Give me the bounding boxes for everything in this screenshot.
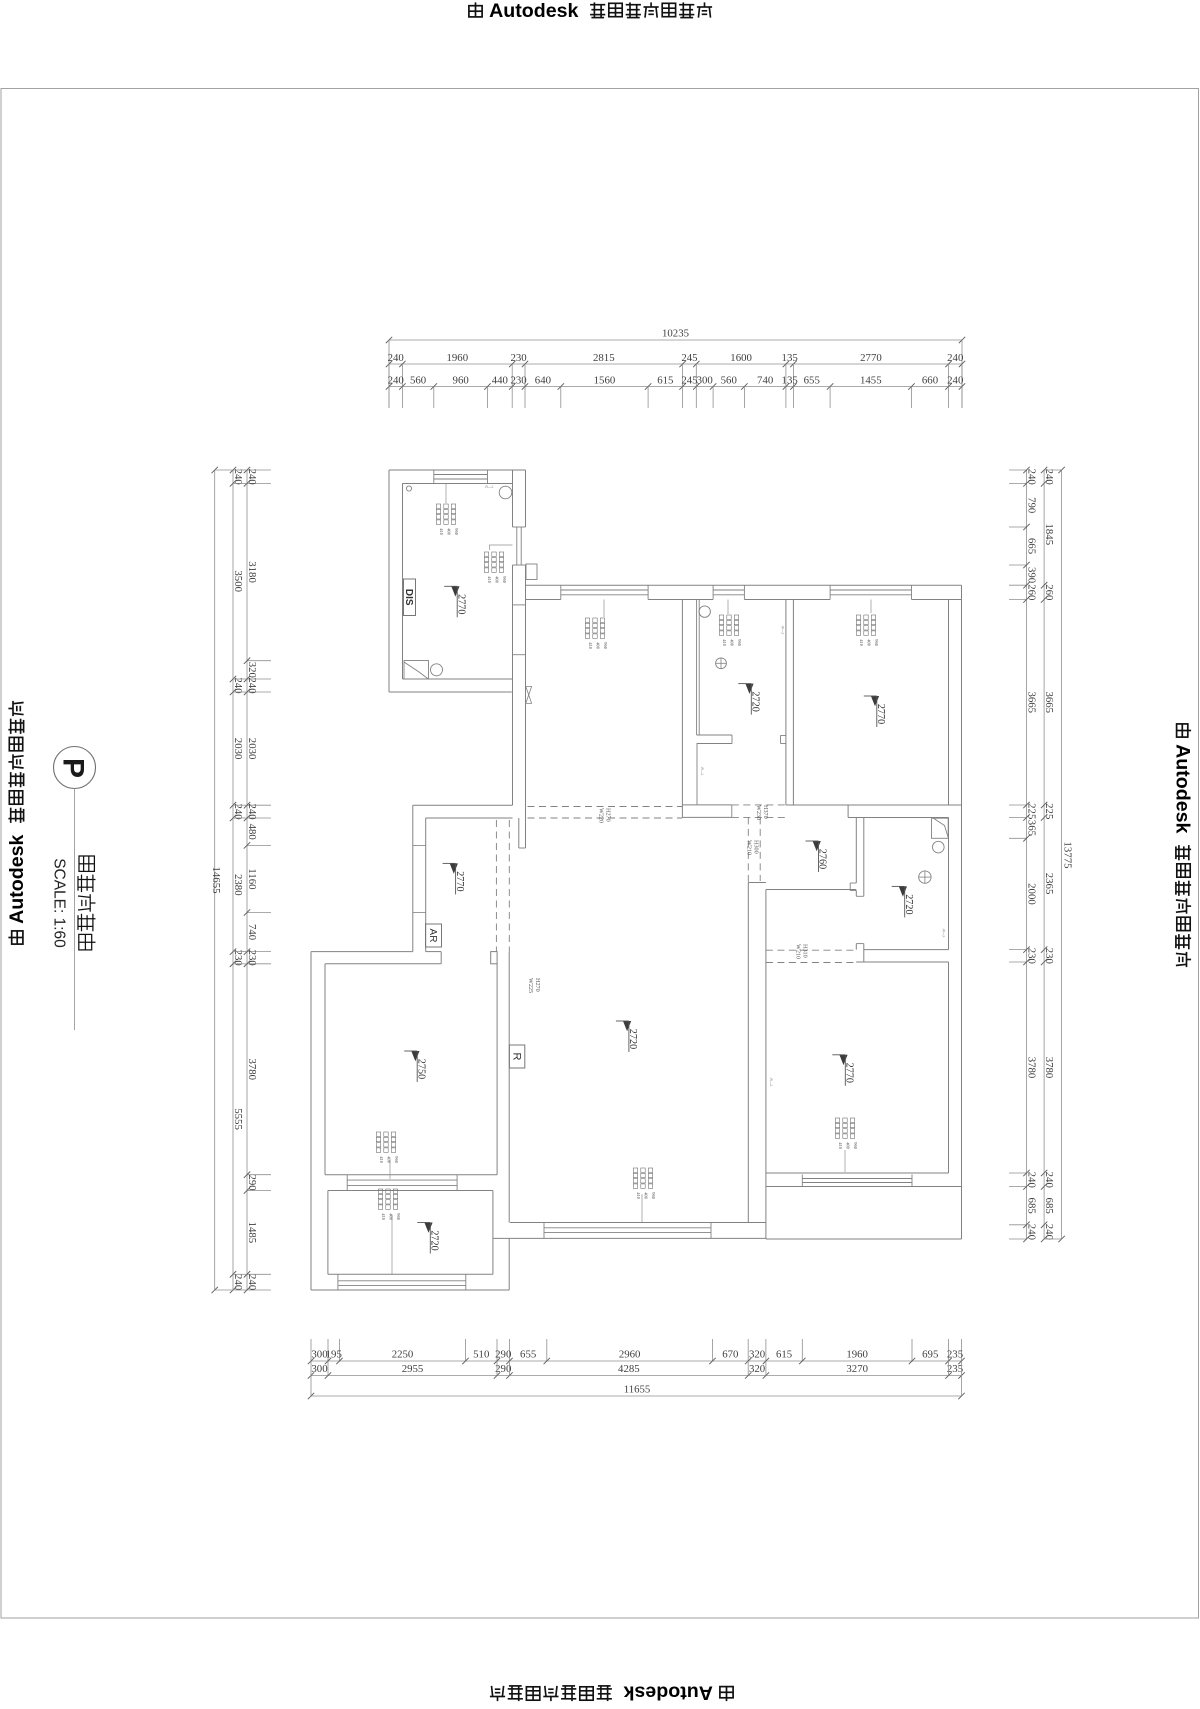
svg-text:P: P bbox=[57, 758, 90, 778]
svg-text:410: 410 bbox=[722, 639, 727, 647]
svg-text:2770: 2770 bbox=[860, 352, 882, 364]
svg-text:245: 245 bbox=[681, 352, 697, 364]
svg-text:2720: 2720 bbox=[429, 1230, 440, 1250]
svg-text:665: 665 bbox=[1026, 538, 1038, 554]
svg-text:400: 400 bbox=[846, 1142, 851, 1150]
svg-text:1600: 1600 bbox=[730, 352, 752, 364]
svg-text:440: 440 bbox=[492, 374, 508, 386]
svg-text:240: 240 bbox=[1026, 1224, 1038, 1240]
svg-text:960: 960 bbox=[651, 1192, 656, 1200]
svg-text:1845: 1845 bbox=[1043, 524, 1055, 546]
svg-text:3780: 3780 bbox=[1043, 1057, 1055, 1079]
svg-text:Autodesk: Autodesk bbox=[623, 1682, 712, 1704]
svg-text:615: 615 bbox=[657, 374, 673, 386]
svg-text:2380: 2380 bbox=[232, 874, 244, 896]
svg-text:480: 480 bbox=[246, 824, 258, 840]
svg-text:Autodesk: Autodesk bbox=[489, 0, 578, 22]
svg-text:-R—J-: -R—J- bbox=[942, 928, 946, 937]
svg-text:640: 640 bbox=[535, 374, 551, 386]
svg-text:960: 960 bbox=[454, 528, 459, 536]
svg-text:H370: H370 bbox=[762, 805, 769, 819]
svg-text:960: 960 bbox=[874, 639, 879, 647]
svg-text:4285: 4285 bbox=[618, 1363, 640, 1375]
svg-text:320: 320 bbox=[749, 1349, 765, 1361]
svg-text:960: 960 bbox=[396, 1213, 401, 1221]
svg-text:300: 300 bbox=[697, 374, 713, 386]
svg-text:560: 560 bbox=[721, 374, 737, 386]
svg-text:400: 400 bbox=[387, 1156, 392, 1164]
svg-text:410: 410 bbox=[859, 639, 864, 647]
svg-text:1960: 1960 bbox=[846, 1349, 868, 1361]
svg-text:410: 410 bbox=[636, 1192, 641, 1200]
svg-text:240: 240 bbox=[232, 1274, 244, 1290]
svg-text:235: 235 bbox=[947, 1349, 963, 1361]
svg-text:240: 240 bbox=[1043, 469, 1055, 485]
svg-text:2815: 2815 bbox=[593, 352, 615, 364]
svg-text:5555: 5555 bbox=[232, 1108, 244, 1130]
svg-text:W210: W210 bbox=[794, 944, 801, 959]
svg-text:-R—J-: -R—J- bbox=[484, 485, 493, 489]
svg-text:240: 240 bbox=[1043, 1172, 1055, 1188]
svg-text:H310: H310 bbox=[802, 944, 809, 958]
svg-text:H270: H270 bbox=[534, 978, 541, 992]
svg-text:2750: 2750 bbox=[415, 1059, 426, 1079]
svg-text:3780: 3780 bbox=[1026, 1057, 1038, 1079]
svg-text:2960: 2960 bbox=[619, 1349, 641, 1361]
svg-text:240: 240 bbox=[1026, 1172, 1038, 1188]
svg-text:W230: W230 bbox=[755, 805, 762, 820]
svg-text:2030: 2030 bbox=[246, 738, 258, 760]
svg-text:685: 685 bbox=[1026, 1198, 1038, 1214]
svg-text:245: 245 bbox=[681, 374, 697, 386]
svg-text:240: 240 bbox=[232, 469, 244, 485]
svg-text:Autodesk: Autodesk bbox=[6, 834, 28, 923]
svg-text:560: 560 bbox=[410, 374, 426, 386]
svg-text:290: 290 bbox=[495, 1349, 511, 1361]
svg-text:400: 400 bbox=[867, 639, 872, 647]
svg-text:2770: 2770 bbox=[875, 704, 886, 724]
svg-text:-R—J-: -R—J- bbox=[781, 625, 785, 634]
svg-text:960: 960 bbox=[394, 1156, 399, 1164]
svg-text:AR: AR bbox=[427, 929, 438, 943]
svg-text:685: 685 bbox=[1043, 1198, 1055, 1214]
svg-text:2250: 2250 bbox=[392, 1349, 414, 1361]
svg-text:3665: 3665 bbox=[1043, 691, 1055, 713]
svg-text:400: 400 bbox=[389, 1213, 394, 1221]
svg-text:260: 260 bbox=[1043, 584, 1055, 600]
svg-text:230: 230 bbox=[1026, 948, 1038, 964]
svg-text:740: 740 bbox=[757, 374, 773, 386]
svg-text:410: 410 bbox=[487, 576, 492, 584]
svg-text:670: 670 bbox=[722, 1349, 738, 1361]
svg-text:2365: 2365 bbox=[1043, 873, 1055, 895]
svg-text:DIS: DIS bbox=[403, 589, 414, 606]
svg-text:2955: 2955 bbox=[402, 1363, 424, 1375]
svg-text:320: 320 bbox=[749, 1363, 765, 1375]
svg-text:290: 290 bbox=[246, 1174, 258, 1190]
svg-text:-R—J-: -R—J- bbox=[769, 1077, 773, 1086]
svg-text:195: 195 bbox=[326, 1349, 342, 1361]
svg-text:2720: 2720 bbox=[627, 1029, 638, 1049]
svg-text:-R—J-: -R—J- bbox=[700, 766, 704, 775]
svg-text:960: 960 bbox=[502, 576, 507, 584]
svg-text:W220: W220 bbox=[597, 808, 604, 823]
svg-text:400: 400 bbox=[730, 639, 735, 647]
svg-text:135: 135 bbox=[782, 352, 798, 364]
svg-text:230: 230 bbox=[1043, 948, 1055, 964]
svg-text:235: 235 bbox=[947, 1363, 963, 1375]
svg-text:2720: 2720 bbox=[903, 894, 914, 914]
svg-text:400: 400 bbox=[447, 528, 452, 536]
svg-text:260: 260 bbox=[1026, 584, 1038, 600]
svg-text:960: 960 bbox=[853, 1142, 858, 1150]
svg-text:225: 225 bbox=[1026, 803, 1038, 819]
svg-text:410: 410 bbox=[381, 1213, 386, 1221]
svg-text:1160: 1160 bbox=[246, 868, 258, 889]
svg-text:960: 960 bbox=[737, 639, 742, 647]
svg-text:510: 510 bbox=[473, 1349, 489, 1361]
svg-text:960: 960 bbox=[603, 642, 608, 650]
svg-text:1960: 1960 bbox=[447, 352, 469, 364]
svg-text:230: 230 bbox=[510, 374, 526, 386]
svg-text:2760: 2760 bbox=[817, 849, 828, 869]
svg-text:410: 410 bbox=[588, 642, 593, 650]
svg-text:3180: 3180 bbox=[246, 561, 258, 583]
svg-text:400: 400 bbox=[596, 642, 601, 650]
svg-text:11655: 11655 bbox=[624, 1384, 651, 1396]
svg-text:695: 695 bbox=[922, 1349, 938, 1361]
svg-text:10235: 10235 bbox=[662, 328, 689, 340]
svg-text:3500: 3500 bbox=[232, 570, 244, 592]
svg-text:225: 225 bbox=[1043, 803, 1055, 819]
svg-text:410: 410 bbox=[838, 1142, 843, 1150]
svg-text:960: 960 bbox=[453, 374, 469, 386]
svg-text:230: 230 bbox=[510, 352, 526, 364]
svg-text:2030: 2030 bbox=[232, 738, 244, 760]
svg-text:1455: 1455 bbox=[860, 374, 882, 386]
svg-text:Autodesk: Autodesk bbox=[1172, 744, 1194, 833]
svg-text:240: 240 bbox=[246, 803, 258, 819]
svg-text:240: 240 bbox=[232, 803, 244, 819]
svg-text:13775: 13775 bbox=[1062, 842, 1074, 869]
svg-text:615: 615 bbox=[776, 1349, 792, 1361]
svg-text:290: 290 bbox=[495, 1363, 511, 1375]
svg-text:2770: 2770 bbox=[454, 871, 465, 891]
svg-text:1485: 1485 bbox=[246, 1222, 258, 1244]
svg-text:2720: 2720 bbox=[750, 691, 761, 711]
svg-text:400: 400 bbox=[644, 1192, 649, 1200]
svg-text:365: 365 bbox=[1026, 820, 1038, 836]
svg-text:H300: H300 bbox=[753, 840, 760, 854]
svg-text:240: 240 bbox=[246, 469, 258, 485]
svg-text:2770: 2770 bbox=[844, 1063, 855, 1083]
svg-text:390: 390 bbox=[1026, 567, 1038, 583]
svg-text:300: 300 bbox=[311, 1363, 327, 1375]
svg-text:1560: 1560 bbox=[594, 374, 616, 386]
svg-text:790: 790 bbox=[1026, 497, 1038, 513]
svg-text:655: 655 bbox=[804, 374, 820, 386]
svg-text:230: 230 bbox=[232, 950, 244, 966]
svg-text:240: 240 bbox=[1026, 469, 1038, 485]
svg-text:240: 240 bbox=[388, 374, 404, 386]
svg-text:SCALE: 1:60: SCALE: 1:60 bbox=[51, 858, 68, 948]
svg-text:740: 740 bbox=[246, 924, 258, 940]
svg-text:320: 320 bbox=[246, 662, 258, 678]
svg-text:H270: H270 bbox=[605, 808, 612, 822]
svg-text:3665: 3665 bbox=[1026, 691, 1038, 713]
svg-text:135: 135 bbox=[782, 374, 798, 386]
svg-text:R: R bbox=[511, 1053, 523, 1061]
svg-text:240: 240 bbox=[388, 352, 404, 364]
svg-text:240: 240 bbox=[246, 677, 258, 693]
svg-text:655: 655 bbox=[520, 1349, 536, 1361]
svg-text:660: 660 bbox=[922, 374, 938, 386]
svg-text:2770: 2770 bbox=[455, 594, 466, 614]
svg-text:3270: 3270 bbox=[846, 1363, 868, 1375]
svg-text:240: 240 bbox=[246, 1274, 258, 1290]
svg-text:410: 410 bbox=[439, 528, 444, 536]
svg-text:14655: 14655 bbox=[210, 867, 222, 894]
svg-text:240: 240 bbox=[947, 374, 963, 386]
svg-text:2000: 2000 bbox=[1026, 883, 1038, 905]
svg-text:240: 240 bbox=[947, 352, 963, 364]
svg-text:240: 240 bbox=[232, 677, 244, 693]
svg-text:3780: 3780 bbox=[246, 1058, 258, 1080]
svg-text:410: 410 bbox=[379, 1156, 384, 1164]
svg-text:400: 400 bbox=[495, 576, 500, 584]
svg-text:230: 230 bbox=[246, 950, 258, 966]
svg-text:W225: W225 bbox=[527, 978, 534, 993]
svg-text:W210: W210 bbox=[745, 840, 752, 855]
svg-text:240: 240 bbox=[1043, 1224, 1055, 1240]
